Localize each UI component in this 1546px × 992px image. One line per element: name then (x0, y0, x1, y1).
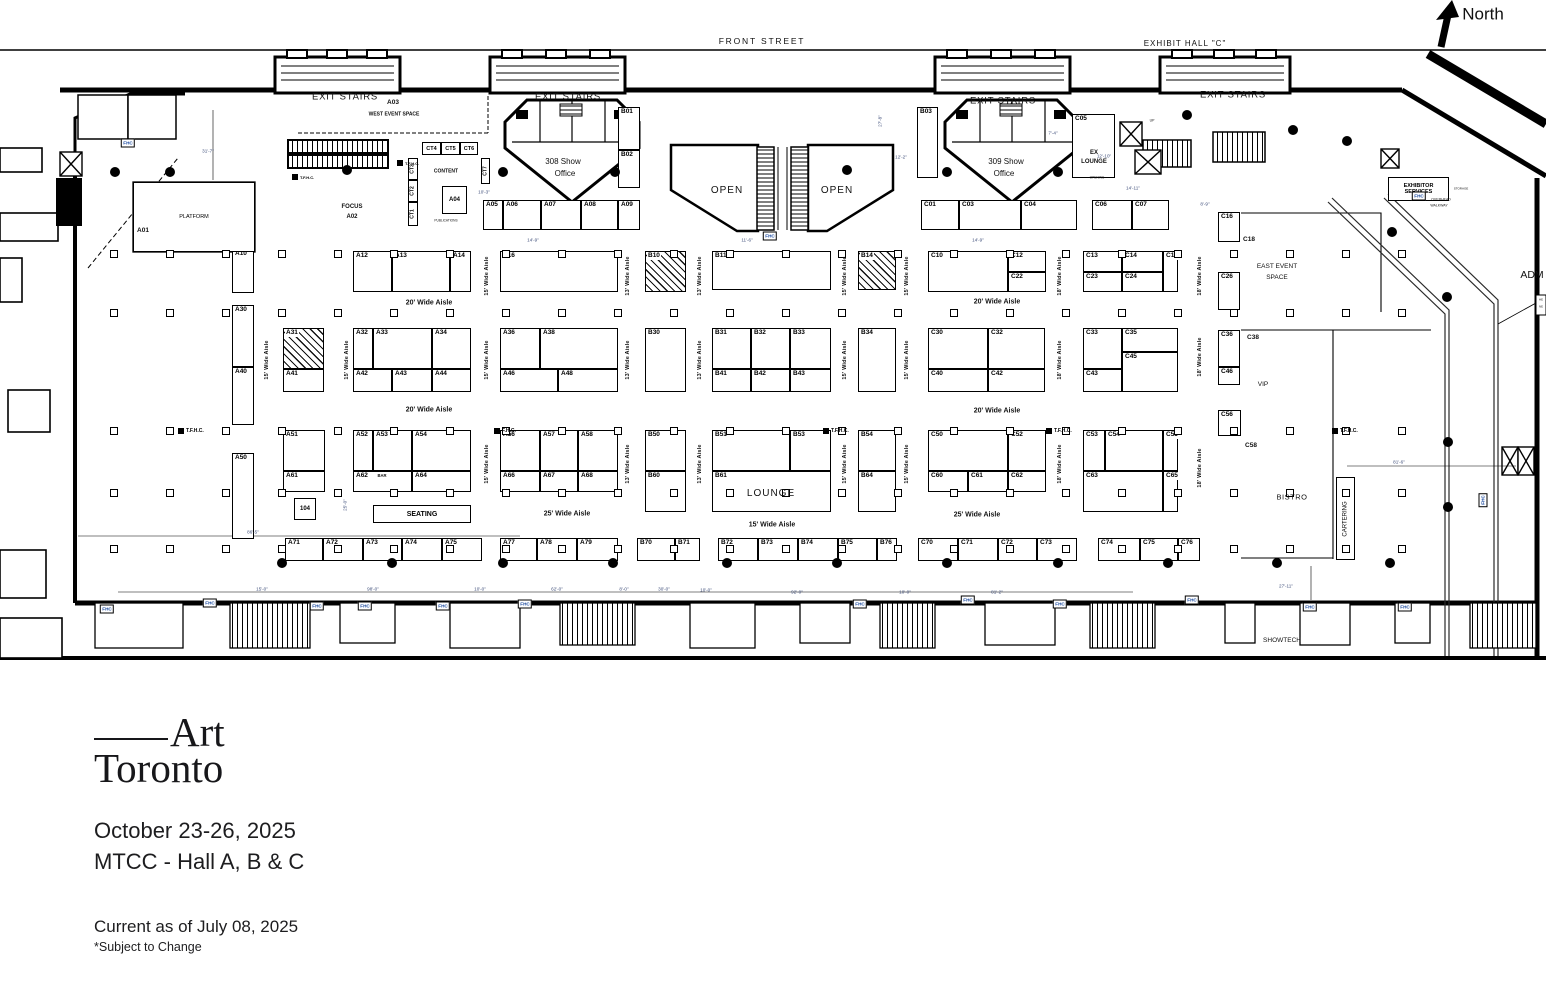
column-marker (1118, 489, 1126, 497)
platform-id: A01 (137, 228, 149, 235)
booth-C26: C26 (1218, 272, 1240, 310)
booth-label: A38 (542, 329, 556, 337)
booth-A51: A51 (283, 430, 325, 471)
column-dot (942, 558, 952, 568)
booth-C05: C05 (1072, 114, 1115, 178)
booth-A05: A05 (483, 200, 503, 230)
booth-C42: C42 (988, 369, 1045, 392)
booth-label: A71 (287, 539, 301, 547)
vip-label: VIP (1258, 382, 1268, 389)
content-label: CONTENT (434, 170, 458, 175)
dimension-5: 27'-8" (878, 115, 883, 127)
booth-C36: C36 (1218, 330, 1240, 367)
room-104: 104 (294, 498, 316, 520)
column-marker (1062, 250, 1070, 258)
floor-plan-content: A05A06A07A08A09B01B02B03C01C03C04C06C07C… (0, 0, 1546, 670)
tfhc-text: T.F.H.C. (405, 161, 419, 166)
room-ct1: CT1 (408, 202, 418, 226)
aisle-label-18-wide-aisle-v19: 18' Wide Aisle (1057, 444, 1063, 483)
booth-A09: A09 (618, 200, 640, 230)
logo-rule (94, 738, 168, 740)
booth-label: A14 (452, 252, 466, 260)
aisle-label-15-wide-aisle-v1: 15' Wide Aisle (344, 340, 350, 379)
column-marker (1398, 427, 1406, 435)
booth-label: A46 (502, 370, 516, 378)
booth-label: B02 (620, 151, 634, 159)
booth-label: C63 (1085, 472, 1099, 480)
booth-B14: B14 (858, 251, 896, 290)
column-marker (782, 427, 790, 435)
tfhc-square-icon (1046, 428, 1052, 434)
booth-label: C35 (1124, 329, 1138, 337)
booth-B31: B31 (712, 328, 751, 369)
booth-A38: A38 (540, 328, 618, 369)
column-marker (1398, 545, 1406, 553)
booth-B10: B10 (645, 251, 686, 292)
booth-A58: A58 (578, 430, 618, 471)
column-marker (782, 309, 790, 317)
room-label: 104 (300, 506, 310, 512)
showtech-label: SHOWTECH (1263, 638, 1301, 645)
column-marker (670, 250, 678, 258)
fhc-marker-13: FHC (1303, 603, 1317, 612)
dimension-15: 10'-0" (474, 587, 486, 592)
fhc-marker-5: FHC (310, 602, 324, 611)
column-marker (502, 489, 510, 497)
room-label: CT4 (426, 146, 436, 152)
fhc-marker-2: FHC (1412, 192, 1426, 201)
opening-label: OPENING (1090, 176, 1105, 179)
booth-C46: C46 (1218, 367, 1240, 385)
column-marker (950, 489, 958, 497)
column-dot (610, 167, 620, 177)
booth-label: A31 (285, 329, 299, 337)
open-area-right: OPEN (821, 186, 853, 196)
booth-B33: B33 (790, 328, 831, 369)
booth-A46: A46 (500, 369, 558, 392)
booth-C16: C16 (1218, 212, 1240, 242)
column-marker (390, 545, 398, 553)
hall-c-show-office-line1: 309 Show (988, 158, 1024, 166)
booth-A34: A34 (432, 328, 471, 369)
booth-label: B53 (792, 431, 806, 439)
column-marker (390, 309, 398, 317)
column-dot (498, 167, 508, 177)
booth-label: A34 (434, 329, 448, 337)
column-dot (832, 558, 842, 568)
booth-label: B54 (860, 431, 874, 439)
booth-C54: C54 (1105, 430, 1163, 471)
dimension-21: 10'-0" (899, 590, 911, 595)
booth-label: A68 (580, 472, 594, 480)
hall-b-show-office-line2: Office (555, 170, 576, 178)
focus-label: FOCUS (342, 204, 363, 210)
booth-label: B41 (714, 370, 728, 378)
tfhc-text: T.F.H.C. (1054, 428, 1072, 434)
column-dot (387, 558, 397, 568)
east-event-space-id: C18 (1243, 237, 1255, 244)
booth-C03: C03 (959, 200, 1021, 230)
booth-B74: B74 (798, 538, 838, 561)
column-marker (110, 545, 118, 553)
booth-label: A58 (580, 431, 594, 439)
column-marker (1174, 489, 1182, 497)
column-marker (558, 489, 566, 497)
column-marker (390, 427, 398, 435)
column-dot (1442, 292, 1452, 302)
room-label: SEATING (407, 511, 438, 518)
fhc-marker-8: FHC (518, 600, 532, 609)
column-marker (1398, 250, 1406, 258)
booth-C40: C40 (928, 369, 988, 392)
fhc-marker-10: FHC (961, 596, 975, 605)
aisle-label-15-wide-aisle-v14: 15' Wide Aisle (904, 256, 910, 295)
booth-C45: C45 (1122, 352, 1178, 392)
booth-A52: A52 (353, 430, 373, 471)
column-marker (502, 250, 510, 258)
aisle-label-15-wide-aisle-v12: 15' Wide Aisle (842, 340, 848, 379)
booth-label: C07 (1134, 201, 1148, 209)
aisle-label-15-wide-aisle-v15: 15' Wide Aisle (904, 340, 910, 379)
booth-label: A64 (414, 472, 428, 480)
booth-B60: B60 (645, 471, 686, 512)
column-marker (1286, 309, 1294, 317)
column-marker (1230, 427, 1238, 435)
tfhc-square-icon (1332, 428, 1338, 434)
booth-A06: A06 (503, 200, 541, 230)
aisle-label-13-wide-aisle-v9: 13' Wide Aisle (697, 340, 703, 379)
booth-A48: A48 (558, 369, 618, 392)
booth-label: B50 (647, 431, 661, 439)
booth-C10: C10 (928, 251, 1008, 292)
room-ct5: CT5 (441, 142, 460, 155)
column-marker (558, 545, 566, 553)
tfhc-text: F.H.C. (502, 428, 516, 434)
column-marker (614, 427, 622, 435)
booth-A40: A40 (232, 367, 254, 425)
column-marker (278, 309, 286, 317)
booth-A61: A61 (283, 471, 325, 492)
column-marker (782, 250, 790, 258)
column-marker (334, 489, 342, 497)
booth-B34: B34 (858, 328, 896, 392)
booth-C35: C35 (1122, 328, 1178, 352)
room-ct6: CT6 (460, 142, 478, 155)
column-marker (950, 545, 958, 553)
booth-label: C75 (1142, 539, 1156, 547)
booth-label: A66 (502, 472, 516, 480)
booth-label: B01 (620, 108, 634, 116)
booth-B03: B03 (917, 107, 938, 178)
column-marker (1174, 545, 1182, 553)
aisle-label-13-wide-aisle-v7: 13' Wide Aisle (625, 444, 631, 483)
column-dot (1443, 502, 1453, 512)
column-marker (166, 489, 174, 497)
column-marker (222, 309, 230, 317)
aisle-label-15-wide-aisle-h6: 15' Wide Aisle (749, 522, 795, 529)
dimension-23: 27'-11" (1279, 584, 1293, 589)
fhc-marker-12: FHC (1185, 596, 1199, 605)
booth-label: A79 (579, 539, 593, 547)
room-label: CT1 (410, 209, 416, 218)
booth-B32: B32 (751, 328, 790, 369)
booth-label: C73 (1039, 539, 1053, 547)
column-marker (558, 250, 566, 258)
column-marker (726, 250, 734, 258)
room-label: CT2 (410, 186, 416, 195)
column-marker (110, 250, 118, 258)
booth-B41: B41 (712, 369, 751, 392)
booth-A53: A53 (373, 430, 412, 471)
booth-label: B71 (677, 539, 691, 547)
column-dot (1182, 110, 1192, 120)
column-dot (342, 165, 352, 175)
column-dot (1443, 437, 1453, 447)
dimension-1: 10'-3" (478, 190, 490, 195)
booth-label: C46 (1220, 368, 1234, 376)
booth-A12: A12 (353, 251, 392, 292)
aisle-label-18-wide-aisle-v22: 18' Wide Aisle (1197, 448, 1203, 487)
booth-C23: C23 (1083, 272, 1122, 292)
booth-label: B03 (919, 108, 933, 116)
booth-A31: A31 (283, 328, 324, 369)
column-dot (1053, 558, 1063, 568)
booth-label: A57 (542, 431, 556, 439)
booth-A56: A56 (500, 430, 540, 471)
booth-C04: C04 (1021, 200, 1077, 230)
aisle-label-15-wide-aisle-v4: 15' Wide Aisle (484, 444, 490, 483)
column-dot (277, 558, 287, 568)
booth-C72: C72 (998, 538, 1037, 561)
booth-C30: C30 (928, 328, 988, 369)
booth-A10: A10 (232, 249, 254, 293)
column-marker (1230, 250, 1238, 258)
tfhc-marker-4: T.F.H.C. (1332, 428, 1358, 434)
booth-label: A51 (285, 431, 299, 439)
tfhc-text: T.F.H.C. (831, 428, 849, 434)
booth-label: A74 (404, 539, 418, 547)
dimension-8: 12'-10" (1097, 154, 1111, 159)
booth-label: C53 (1085, 431, 1099, 439)
aisle-label-20-wide-aisle-h1: 20' Wide Aisle (974, 299, 1020, 306)
room-seating: SEATING (373, 505, 471, 523)
column-dot (1387, 227, 1397, 237)
booth-label: B31 (714, 329, 728, 337)
booth-label: A30 (234, 306, 248, 314)
storage-label: STORAGE (1454, 188, 1469, 191)
fhc-marker-3: FHC (100, 605, 114, 614)
vip-area-id: C38 (1247, 335, 1259, 342)
column-marker (1006, 309, 1014, 317)
booth-C60: C60 (928, 471, 968, 492)
booth-label: B42 (753, 370, 767, 378)
exit-stairs-label-3: EXIT STAIRS (970, 96, 1036, 106)
booth-B42: B42 (751, 369, 790, 392)
aisle-label-13-wide-aisle-v8: 13' Wide Aisle (697, 256, 703, 295)
lounge-label: LOUNGE (747, 489, 795, 499)
column-dot (942, 167, 952, 177)
column-dot (608, 558, 618, 568)
tfhc-text: T.F.H.C. (1340, 428, 1358, 434)
booth-label: A67 (542, 472, 556, 480)
column-marker (222, 427, 230, 435)
dimension-20: 92'-0" (791, 590, 803, 595)
booth-label: A78 (539, 539, 553, 547)
column-marker (334, 427, 342, 435)
tfhc-text: T.F.H.C. (300, 175, 314, 180)
overhead-walkway-line2: WALKWAY (1430, 204, 1447, 208)
exit-stairs-label-4: EXIT STAIRS (1200, 90, 1266, 100)
booth-A41: A41 (283, 369, 324, 392)
column-marker (838, 545, 846, 553)
tfhc-marker-0: T.F.H.C. (178, 428, 204, 434)
room-a04: A04 (442, 186, 467, 214)
booth-label: C61 (970, 472, 984, 480)
east-event-space-line1: EAST EVENT (1257, 264, 1297, 271)
booth-label: C62 (1010, 472, 1024, 480)
booth-label: A07 (543, 201, 557, 209)
aisle-label-15-wide-aisle-v13: 15' Wide Aisle (842, 444, 848, 483)
column-marker (166, 309, 174, 317)
column-marker (670, 489, 678, 497)
dimension-4: 11'-6" (741, 238, 752, 243)
booth-label: C71 (960, 539, 974, 547)
dimension-13: 15'-0" (256, 587, 268, 592)
bistro-label: BISTRO (1277, 493, 1308, 501)
column-marker (1342, 250, 1350, 258)
column-dot (165, 167, 175, 177)
event-dates: October 23-26, 2025 (94, 818, 304, 844)
dimension-22: 81'-2" (991, 590, 1003, 595)
booth-A74: A74 (402, 538, 442, 561)
column-marker (1062, 545, 1070, 553)
column-dot (1342, 136, 1352, 146)
subject-to-change-note: *Subject to Change (94, 940, 304, 954)
dimension-16: 62'-0" (551, 587, 563, 592)
booth-label: C23 (1085, 273, 1099, 281)
column-marker (1062, 309, 1070, 317)
callout-line1: HE (1539, 299, 1543, 302)
column-marker (894, 427, 902, 435)
booth-label: A43 (394, 370, 408, 378)
front-street-label: FRONT STREET (719, 37, 806, 46)
dimension-6: 12'-2" (895, 155, 907, 160)
booth-A07: A07 (541, 200, 581, 230)
column-marker (446, 489, 454, 497)
booth-label: A36 (502, 329, 516, 337)
booth-label: C65 (1165, 472, 1179, 480)
booth-C24: C24 (1122, 272, 1163, 292)
booth-label: B60 (647, 472, 661, 480)
column-marker (894, 309, 902, 317)
booth-A33: A33 (373, 328, 432, 369)
exit-stairs-label-1: EXIT STAIRS (312, 92, 378, 102)
bistro-area-id: C58 (1245, 443, 1257, 450)
logo-toronto: Toronto (94, 752, 304, 785)
aisle-label-18-wide-aisle-v20: 18' Wide Aisle (1197, 256, 1203, 295)
title-block: Art Toronto October 23-26, 2025 MTCC - H… (94, 716, 304, 954)
booth-label: A50 (234, 454, 248, 462)
column-marker (1230, 489, 1238, 497)
exit-stairs-label-2: EXIT STAIRS (535, 92, 601, 102)
column-marker (670, 309, 678, 317)
logo-art: Art (170, 716, 225, 749)
column-dot (498, 558, 508, 568)
booth-B51: B51 (712, 430, 790, 471)
column-marker (1006, 489, 1014, 497)
room-ct7: CT7 (481, 158, 490, 184)
column-dot (1385, 558, 1395, 568)
column-marker (446, 250, 454, 258)
booth-label: B10 (647, 252, 661, 260)
fhc-marker-15: FHC (1479, 493, 1488, 507)
column-marker (614, 250, 622, 258)
dimension-24: 81'-6" (1393, 460, 1405, 465)
tfhc-square-icon (397, 160, 403, 166)
booth-label: C50 (930, 431, 944, 439)
booth-C22: C22 (1008, 272, 1046, 292)
column-marker (110, 427, 118, 435)
booth-B53: B53 (790, 430, 831, 471)
column-marker (1398, 309, 1406, 317)
overhead-walkway-line1: OVERHEAD (1431, 198, 1451, 202)
dimension-19: 10'-0" (700, 588, 712, 593)
publications-label: PUBLICATIONS (434, 219, 457, 222)
column-marker (670, 545, 678, 553)
booth-label: A33 (375, 329, 389, 337)
booth-label: C06 (1094, 201, 1108, 209)
booth-label: C16 (1220, 213, 1234, 221)
booth-label: A05 (485, 201, 499, 209)
booth-label: B33 (792, 329, 806, 337)
booth-C71: C71 (958, 538, 998, 561)
booth-B54: B54 (858, 430, 896, 471)
adm-label: ADM (1520, 270, 1543, 281)
column-marker (558, 309, 566, 317)
column-marker (278, 427, 286, 435)
aisle-label-15-wide-aisle-v3: 15' Wide Aisle (484, 340, 490, 379)
room-label: CT6 (464, 146, 474, 152)
booth-A42: A42 (353, 369, 392, 392)
aisle-label-13-wide-aisle-v10: 13' Wide Aisle (697, 444, 703, 483)
booth-label: B43 (792, 370, 806, 378)
column-marker (1286, 545, 1294, 553)
booth-label: B61 (714, 472, 728, 480)
booth-label: C40 (930, 370, 944, 378)
column-marker (894, 250, 902, 258)
booth-label: A73 (365, 539, 379, 547)
booth-C01: C01 (921, 200, 959, 230)
booth-B02: B02 (618, 150, 640, 188)
column-marker (894, 489, 902, 497)
column-marker (614, 489, 622, 497)
booth-label: C30 (930, 329, 944, 337)
booth-label: C45 (1124, 353, 1138, 361)
dimension-17: 8'-0" (619, 587, 628, 592)
up-label: UP (1150, 119, 1155, 123)
booth-A08: A08 (581, 200, 618, 230)
column-marker (1118, 545, 1126, 553)
booth-A50: A50 (232, 453, 254, 539)
aisle-label-18-wide-aisle-v18: 18' Wide Aisle (1057, 340, 1063, 379)
west-event-space-label: WEST EVENT SPACE (369, 113, 420, 118)
booth-label: C14 (1124, 252, 1138, 260)
room-label: A04 (449, 197, 460, 203)
column-marker (446, 427, 454, 435)
tfhc-square-icon (823, 428, 829, 434)
column-marker (782, 545, 790, 553)
column-marker (334, 250, 342, 258)
